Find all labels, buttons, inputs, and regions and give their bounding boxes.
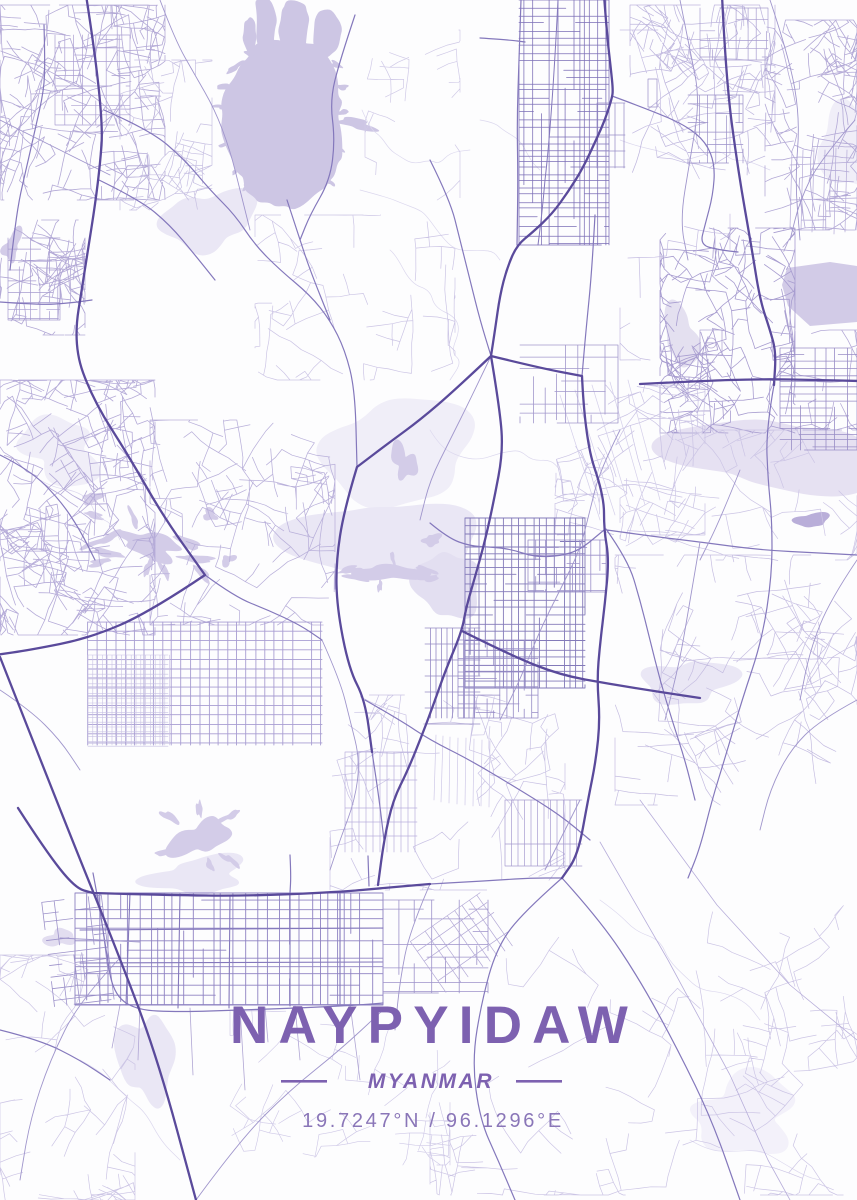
svg-text:MYANMAR: MYANMAR <box>368 1070 494 1093</box>
svg-text:19.7247°N / 96.1296°E: 19.7247°N / 96.1296°E <box>302 1110 564 1132</box>
svg-text:NAYPYIDAW: NAYPYIDAW <box>230 996 638 1055</box>
